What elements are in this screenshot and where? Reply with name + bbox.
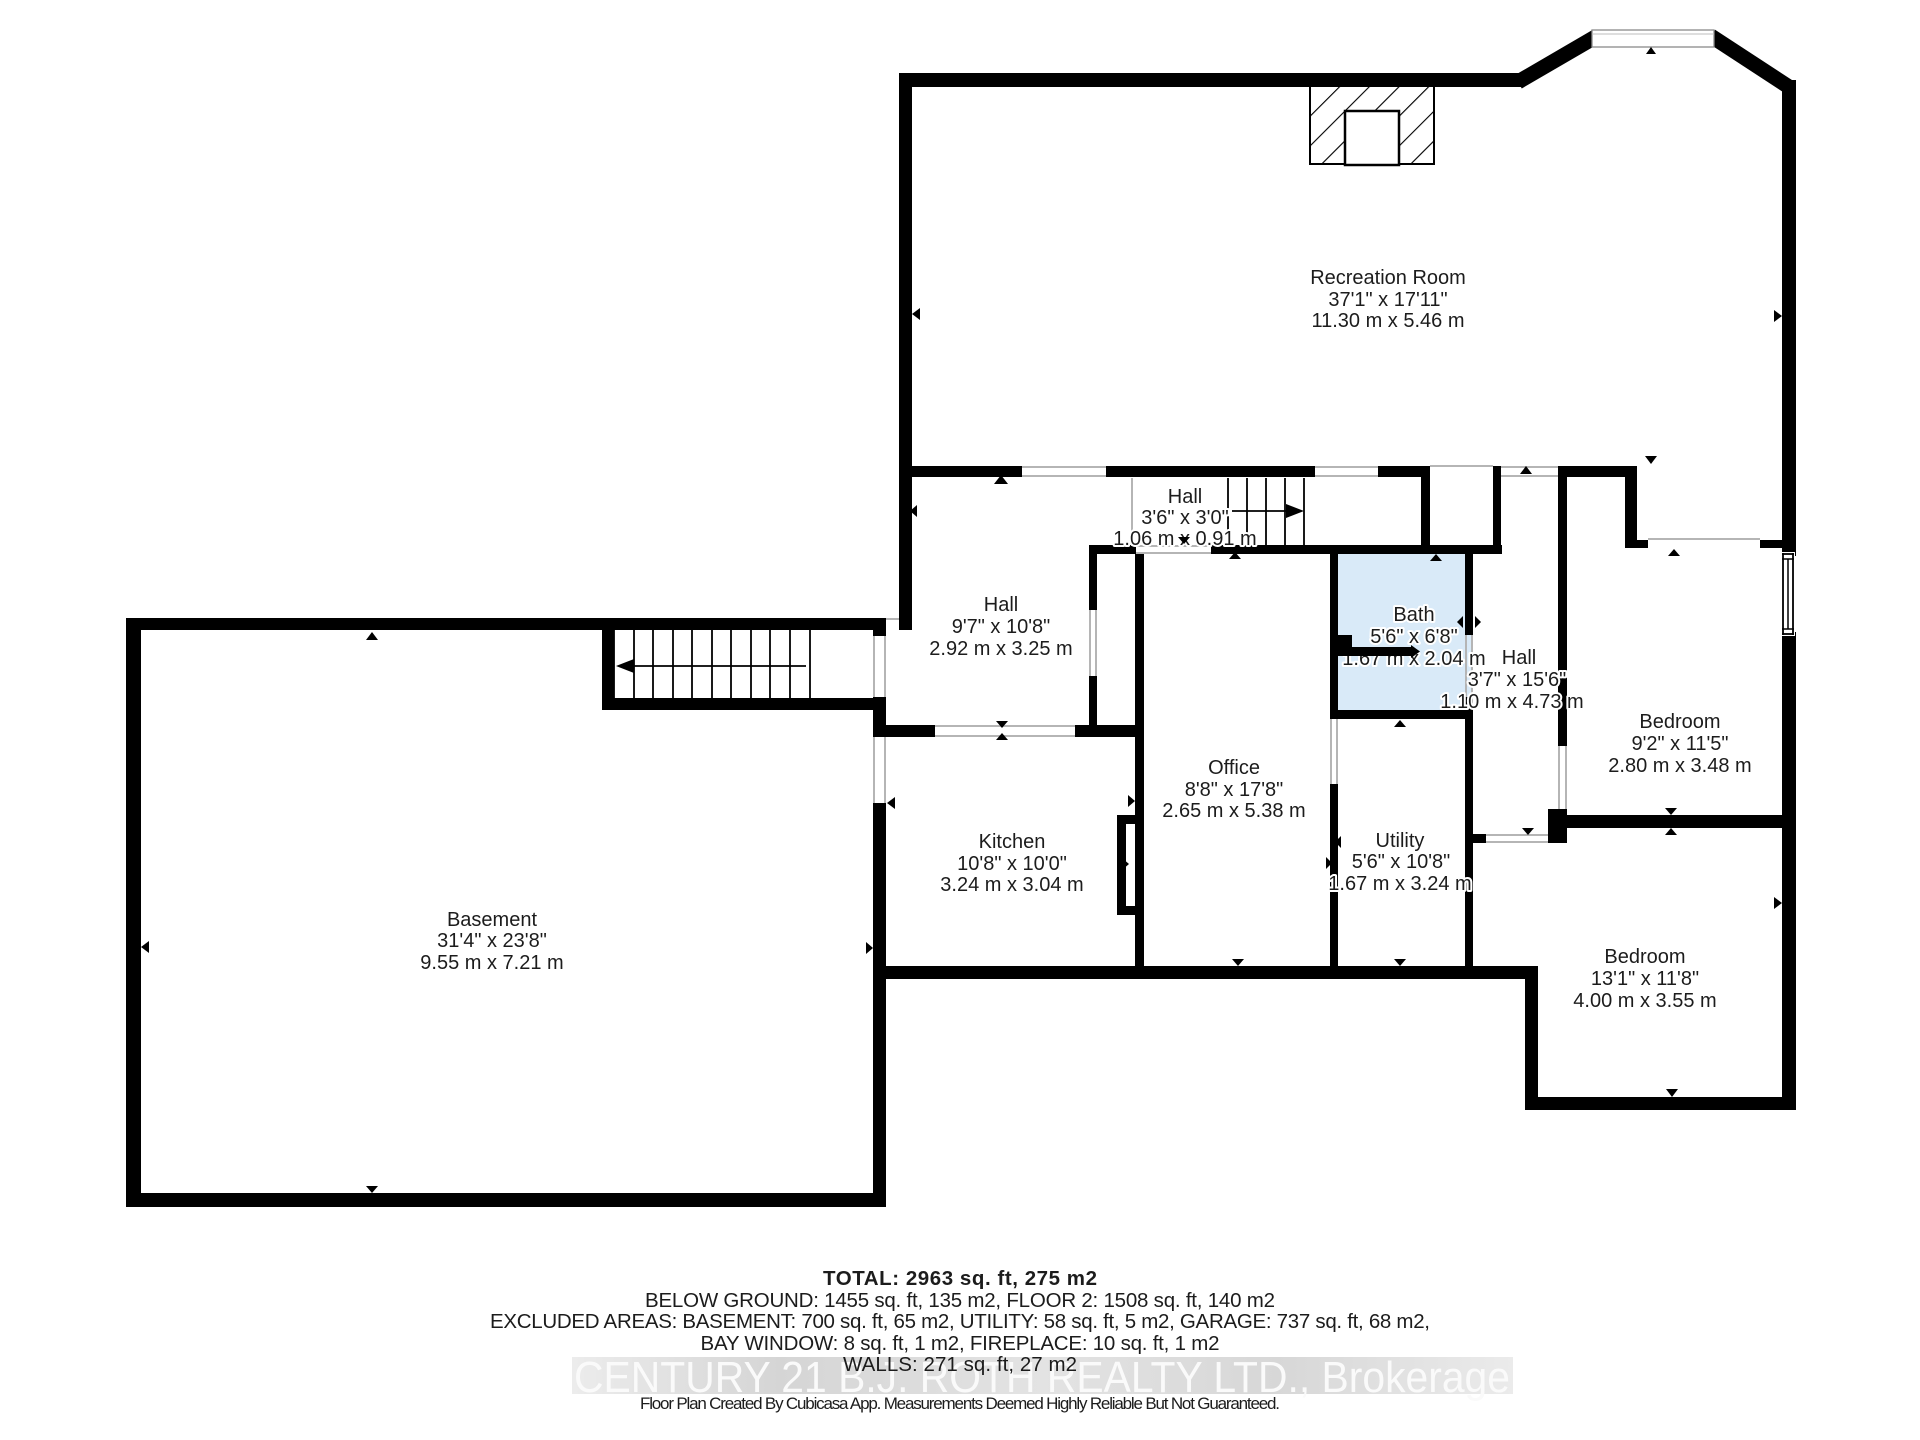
svg-text:2.92 m x 3.25 m: 2.92 m x 3.25 m: [929, 638, 1072, 660]
svg-text:Basement: Basement: [447, 909, 537, 931]
svg-text:9'2" x 11'5": 9'2" x 11'5": [1631, 733, 1728, 755]
svg-text:3.24 m x 3.04 m: 3.24 m x 3.04 m: [940, 874, 1083, 896]
svg-text:Utility: Utility: [1376, 830, 1425, 852]
svg-text:EXCLUDED AREAS: BASEMENT: 700: EXCLUDED AREAS: BASEMENT: 700 sq. ft, 65…: [490, 1310, 1430, 1333]
svg-text:1.10 m x 4.73 m: 1.10 m x 4.73 m: [1440, 691, 1583, 713]
svg-text:BAY WINDOW: 8 sq. ft, 1 m2, FI: BAY WINDOW: 8 sq. ft, 1 m2, FIREPLACE: 1…: [701, 1332, 1220, 1355]
svg-text:Recreation Room: Recreation Room: [1310, 267, 1466, 289]
svg-text:13'1" x 11'8": 13'1" x 11'8": [1591, 968, 1699, 990]
svg-text:BELOW GROUND: 1455 sq. ft, 135: BELOW GROUND: 1455 sq. ft, 135 m2, FLOOR…: [645, 1289, 1275, 1312]
svg-text:31'4" x 23'8": 31'4" x 23'8": [437, 930, 547, 952]
svg-text:4.00 m x 3.55 m: 4.00 m x 3.55 m: [1573, 990, 1716, 1012]
svg-text:Hall: Hall: [1168, 486, 1202, 508]
svg-text:Hall: Hall: [984, 594, 1018, 616]
svg-text:Office: Office: [1208, 757, 1260, 779]
svg-text:Bedroom: Bedroom: [1604, 946, 1685, 968]
svg-text:Bedroom: Bedroom: [1639, 711, 1720, 733]
svg-text:Kitchen: Kitchen: [979, 831, 1046, 853]
svg-text:3'7" x 15'6": 3'7" x 15'6": [1468, 669, 1567, 691]
svg-text:1.67 m x 3.24 m: 1.67 m x 3.24 m: [1328, 873, 1471, 895]
svg-text:8'8" x 17'8": 8'8" x 17'8": [1185, 779, 1284, 801]
svg-text:5'6" x 10'8": 5'6" x 10'8": [1352, 851, 1451, 873]
svg-text:37'1" x 17'11": 37'1" x 17'11": [1328, 289, 1447, 311]
svg-text:TOTAL: 2963 sq. ft, 275 m2: TOTAL: 2963 sq. ft, 275 m2: [823, 1267, 1097, 1290]
svg-text:3'6" x 3'0": 3'6" x 3'0": [1141, 507, 1228, 529]
svg-text:10'8" x 10'0": 10'8" x 10'0": [957, 853, 1067, 875]
svg-text:9'7" x 10'8": 9'7" x 10'8": [952, 616, 1051, 638]
svg-text:Hall: Hall: [1502, 647, 1536, 669]
svg-text:9.55 m x 7.21 m: 9.55 m x 7.21 m: [420, 952, 563, 974]
svg-text:Floor Plan Created By Cubicasa: Floor Plan Created By Cubicasa App. Meas…: [640, 1394, 1280, 1413]
svg-text:Bath: Bath: [1393, 604, 1434, 626]
svg-text:2.80 m x 3.48 m: 2.80 m x 3.48 m: [1608, 755, 1751, 777]
svg-text:5'6" x 6'8": 5'6" x 6'8": [1370, 626, 1457, 648]
svg-text:11.30 m x 5.46 m: 11.30 m x 5.46 m: [1311, 310, 1464, 332]
svg-text:WALLS: 271 sq. ft, 27 m2: WALLS: 271 sq. ft, 27 m2: [843, 1353, 1077, 1376]
svg-text:2.65 m x 5.38 m: 2.65 m x 5.38 m: [1162, 800, 1305, 822]
